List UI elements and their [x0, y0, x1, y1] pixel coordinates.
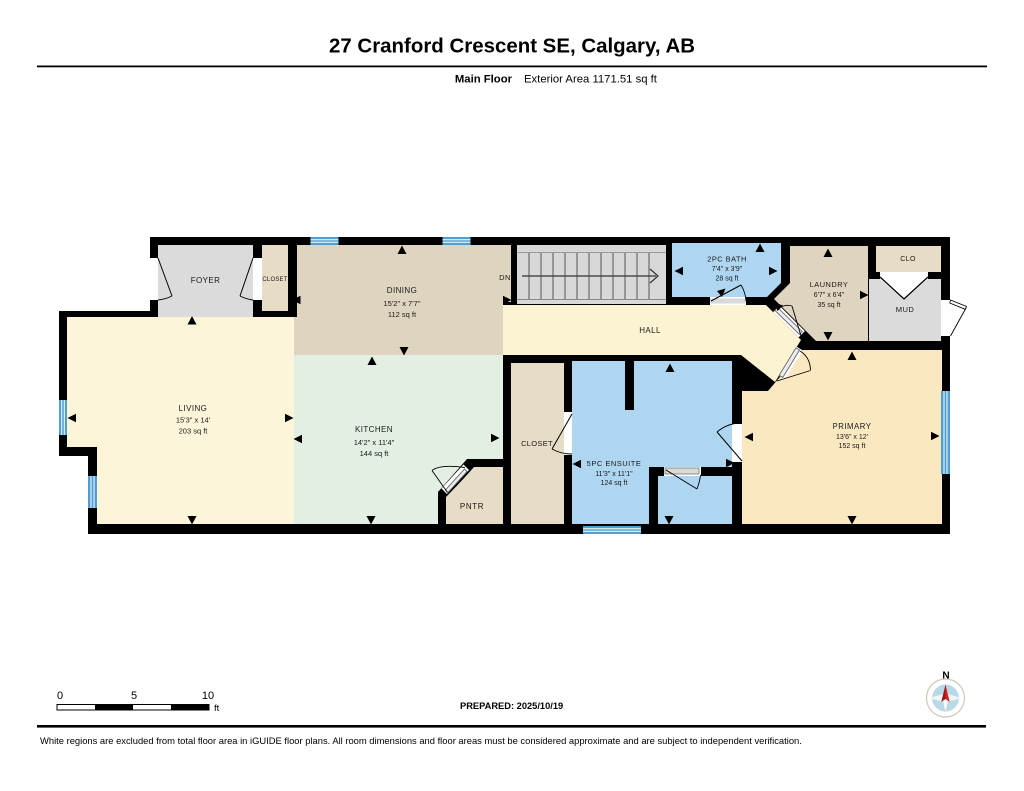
svg-text:203 sq ft: 203 sq ft: [179, 427, 209, 436]
svg-text:5: 5: [131, 690, 137, 702]
svg-text:HALL: HALL: [639, 326, 661, 335]
svg-text:DN: DN: [499, 273, 511, 282]
svg-text:10: 10: [202, 690, 214, 702]
svg-text:11'3" x 11'1": 11'3" x 11'1": [595, 471, 633, 478]
svg-text:0: 0: [57, 690, 63, 702]
svg-text:5PC ENSUITE: 5PC ENSUITE: [587, 459, 642, 468]
svg-text:MUD: MUD: [896, 305, 915, 314]
svg-text:27 Cranford Crescent SE, Calga: 27 Cranford Crescent SE, Calgary, AB: [329, 35, 695, 58]
svg-text:ft: ft: [214, 703, 220, 714]
svg-text:CLOSET: CLOSET: [262, 277, 287, 283]
svg-text:LIVING: LIVING: [179, 404, 208, 413]
svg-text:DINING: DINING: [387, 286, 417, 295]
svg-text:CLOSET: CLOSET: [521, 439, 553, 448]
svg-text:N: N: [942, 671, 949, 682]
svg-text:PRIMARY: PRIMARY: [833, 422, 872, 431]
svg-text:Main Floor: Main Floor: [455, 74, 513, 86]
svg-text:2PC BATH: 2PC BATH: [707, 255, 747, 264]
svg-text:CLO: CLO: [900, 256, 916, 263]
svg-text:28 sq ft: 28 sq ft: [716, 276, 739, 283]
svg-text:35 sq ft: 35 sq ft: [818, 302, 841, 309]
svg-text:152 sq ft: 152 sq ft: [839, 443, 866, 450]
svg-text:15'2" x 7'7": 15'2" x 7'7": [384, 299, 421, 308]
svg-text:13'6" x 12': 13'6" x 12': [836, 434, 868, 441]
svg-text:Exterior Area 1171.51 sq ft: Exterior Area 1171.51 sq ft: [524, 74, 658, 86]
svg-text:FOYER: FOYER: [191, 276, 221, 285]
svg-text:14'2" x 11'4": 14'2" x 11'4": [354, 438, 395, 447]
svg-text:112 sq ft: 112 sq ft: [388, 310, 417, 319]
svg-text:124 sq ft: 124 sq ft: [601, 480, 628, 487]
svg-text:White regions are excluded fro: White regions are excluded from total fl…: [40, 735, 802, 746]
svg-text:LAUNDRY: LAUNDRY: [810, 280, 849, 289]
svg-text:144 sq ft: 144 sq ft: [360, 449, 390, 458]
svg-text:7'4" x 3'9": 7'4" x 3'9": [712, 266, 743, 273]
svg-text:PREPARED: 2025/10/19: PREPARED: 2025/10/19: [460, 701, 563, 711]
svg-text:KITCHEN: KITCHEN: [355, 425, 393, 434]
svg-text:6'7" x 6'4": 6'7" x 6'4": [814, 292, 845, 299]
svg-text:15'3" x 14': 15'3" x 14': [176, 416, 211, 425]
svg-text:PNTR: PNTR: [460, 502, 484, 511]
